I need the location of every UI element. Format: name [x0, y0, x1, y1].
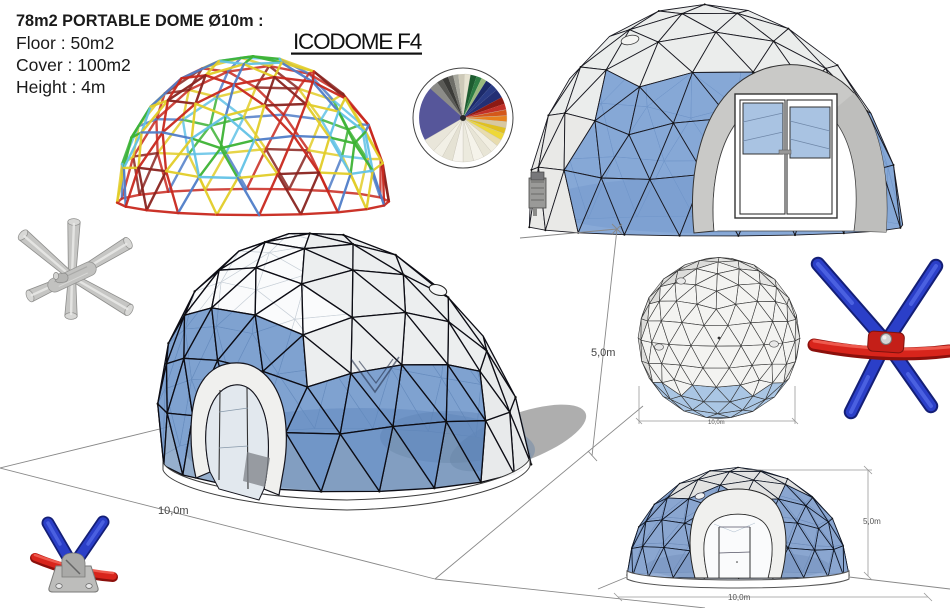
- svg-text:10,0m: 10,0m: [158, 505, 189, 517]
- svg-text:10,0m: 10,0m: [728, 593, 751, 602]
- svg-text:Height : 4m: Height : 4m: [16, 77, 105, 97]
- svg-text:Floor : 50m2: Floor : 50m2: [16, 33, 114, 53]
- svg-text:78m2 PORTABLE DOME Ø10m :: 78m2 PORTABLE DOME Ø10m :: [16, 12, 264, 30]
- svg-text:ICODOME F4: ICODOME F4: [293, 29, 422, 54]
- svg-text:Cover : 100m2: Cover : 100m2: [16, 55, 131, 75]
- svg-text:5,0m: 5,0m: [591, 347, 615, 359]
- svg-text:10,0m: 10,0m: [708, 420, 725, 426]
- svg-text:5,0m: 5,0m: [863, 517, 881, 526]
